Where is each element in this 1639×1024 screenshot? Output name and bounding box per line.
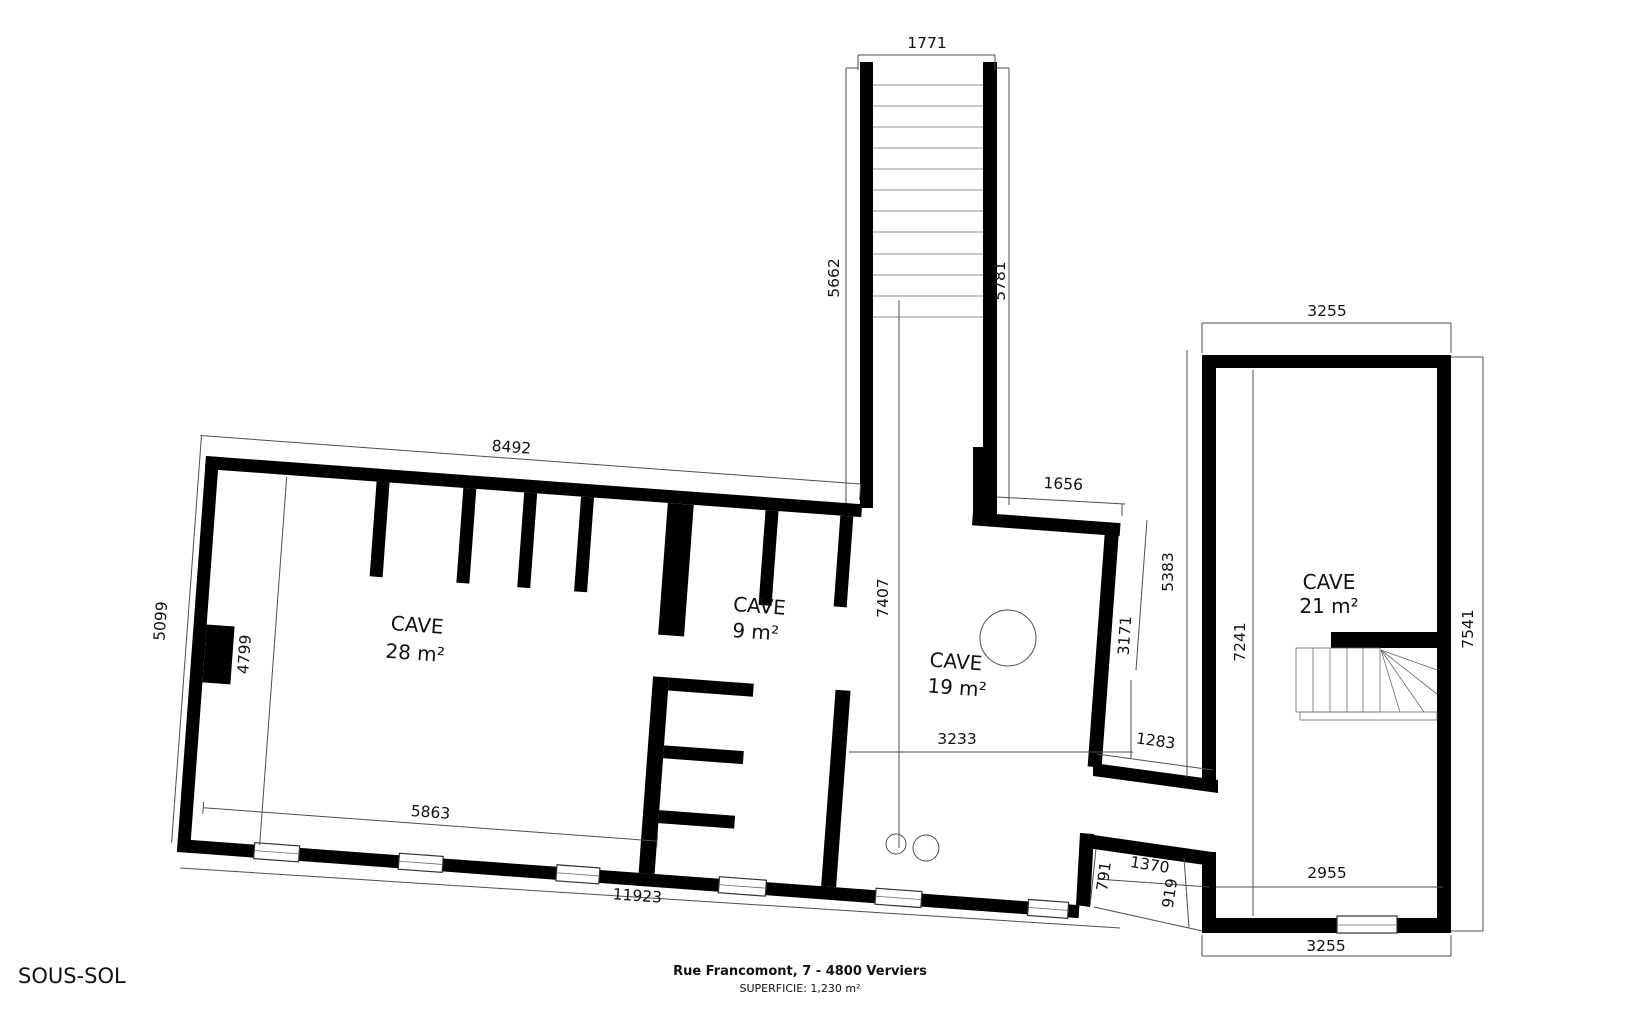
dim-3171: 3171 — [1115, 615, 1136, 656]
dim-main-top: 8492 — [491, 437, 532, 458]
connecting-walls — [1076, 763, 1218, 932]
room-name: CAVE — [732, 592, 786, 620]
dim-3233: 3233 — [937, 730, 976, 748]
address-label: Rue Francomont, 7 - 4800 Verviers — [673, 964, 927, 979]
room-cave-21: CAVE 21 m² — [1299, 570, 1358, 618]
dimension-labels: 1771 5662 5781 1656 7407 3233 3171 1283 … — [612, 34, 1477, 955]
dim-7541: 7541 — [1459, 609, 1477, 648]
dim-3255-bottom: 3255 — [1306, 937, 1345, 955]
dim-2955: 2955 — [1307, 864, 1346, 882]
dim-stair-left: 5662 — [825, 258, 843, 297]
dim-bottom-inner: 5863 — [410, 802, 451, 823]
dim-5383: 5383 — [1159, 552, 1177, 591]
superficie-label: SUPERFICIE: 1,230 m² — [739, 982, 860, 995]
dim-791: 791 — [1093, 860, 1115, 892]
dim-stair-right: 5781 — [991, 261, 1009, 300]
dim-left-outer: 5099 — [150, 601, 171, 642]
floor-label: SOUS-SOL — [18, 964, 126, 988]
dim-1283: 1283 — [1135, 729, 1177, 752]
room-name: CAVE — [390, 611, 444, 639]
stair-treads — [873, 85, 983, 317]
misc-dim-lines — [180, 300, 1213, 928]
room-area: 21 m² — [1299, 594, 1358, 618]
dim-7407: 7407 — [874, 578, 892, 617]
room-cave-19: CAVE 19 m² — [927, 648, 990, 702]
dim-11923: 11923 — [612, 885, 662, 906]
room-name: CAVE — [1303, 570, 1356, 594]
upper-staircase — [846, 55, 1009, 520]
room-area: 19 m² — [927, 673, 988, 701]
room-name: CAVE — [929, 648, 983, 676]
room-cave-9: CAVE 9 m² — [730, 592, 786, 646]
dim-stair-top: 1771 — [907, 34, 946, 52]
floor-plan-page: 8492 5863 4799 5099 CAVE 28 m² CAVE 9 m²… — [0, 0, 1639, 1024]
dim-1656: 1656 — [1043, 474, 1083, 494]
room-area: 28 m² — [385, 639, 446, 667]
dim-left-inner: 4799 — [234, 634, 255, 675]
floor-plan-drawing: 8492 5863 4799 5099 CAVE 28 m² CAVE 9 m²… — [0, 0, 1639, 1024]
winder-staircase — [1296, 648, 1437, 720]
compartment-walls — [639, 676, 851, 887]
dim-3255-top: 3255 — [1307, 302, 1346, 320]
dim-7241: 7241 — [1231, 622, 1249, 661]
room-cave-28: CAVE 28 m² — [385, 611, 448, 667]
dim-919: 919 — [1159, 877, 1181, 909]
room-area: 9 m² — [731, 618, 779, 645]
